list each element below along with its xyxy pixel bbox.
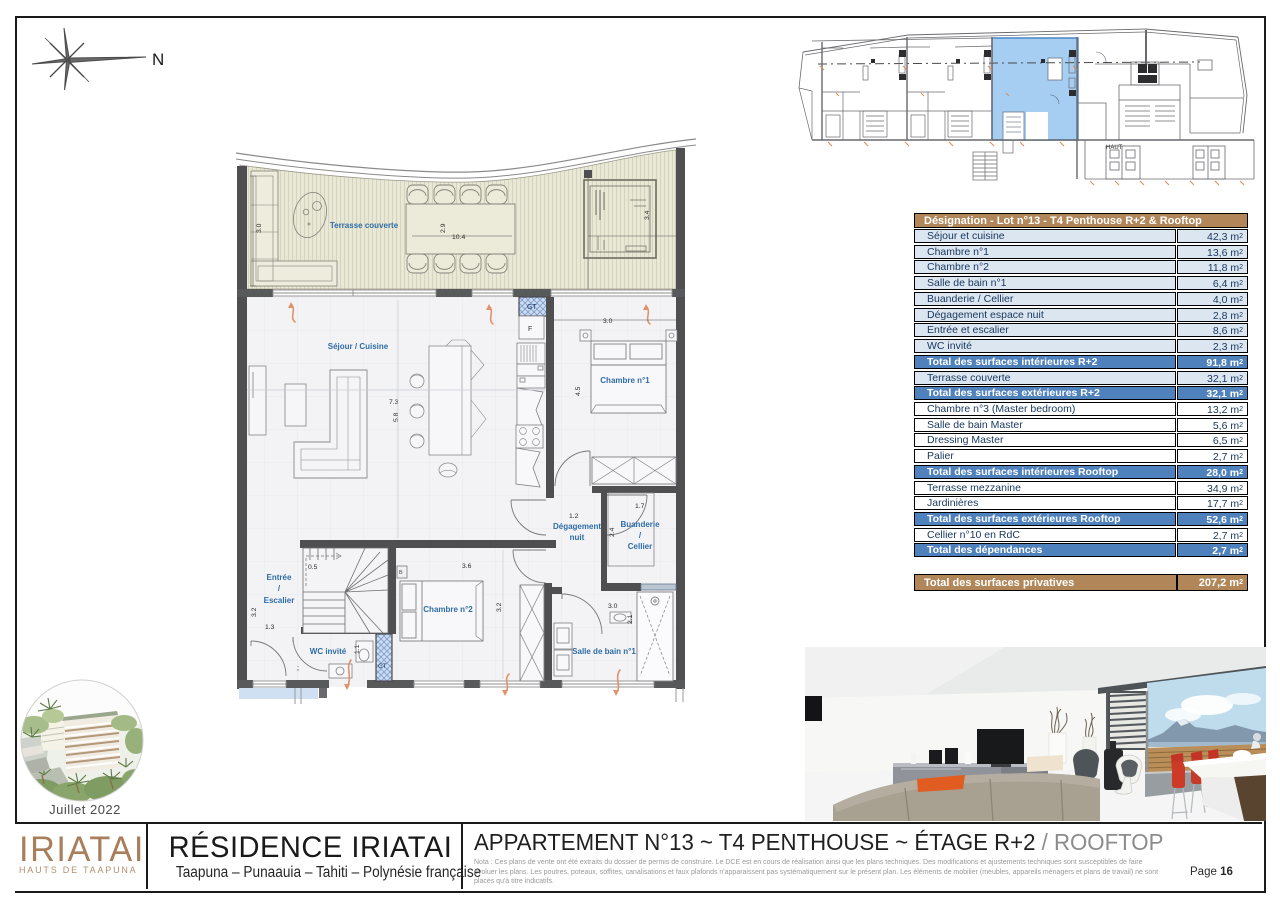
svg-text:HAUT: HAUT bbox=[1106, 145, 1123, 151]
